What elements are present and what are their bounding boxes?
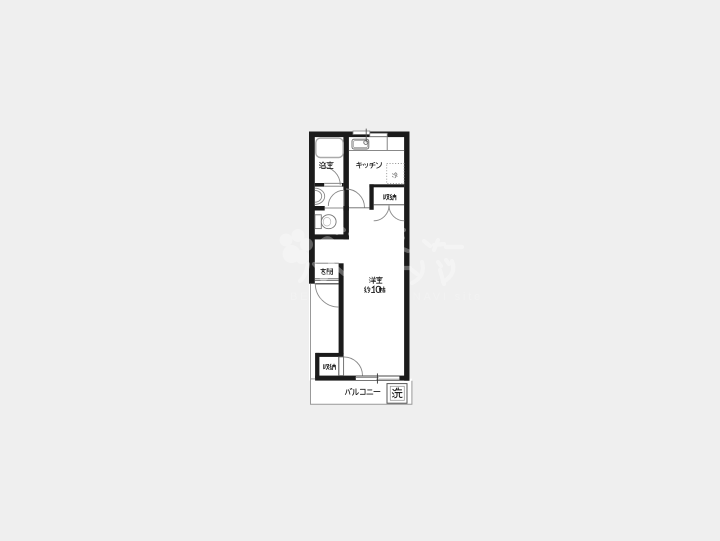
svg-text:BELLE CHINTAI NAVI site: BELLE CHINTAI NAVI site [290, 291, 483, 303]
